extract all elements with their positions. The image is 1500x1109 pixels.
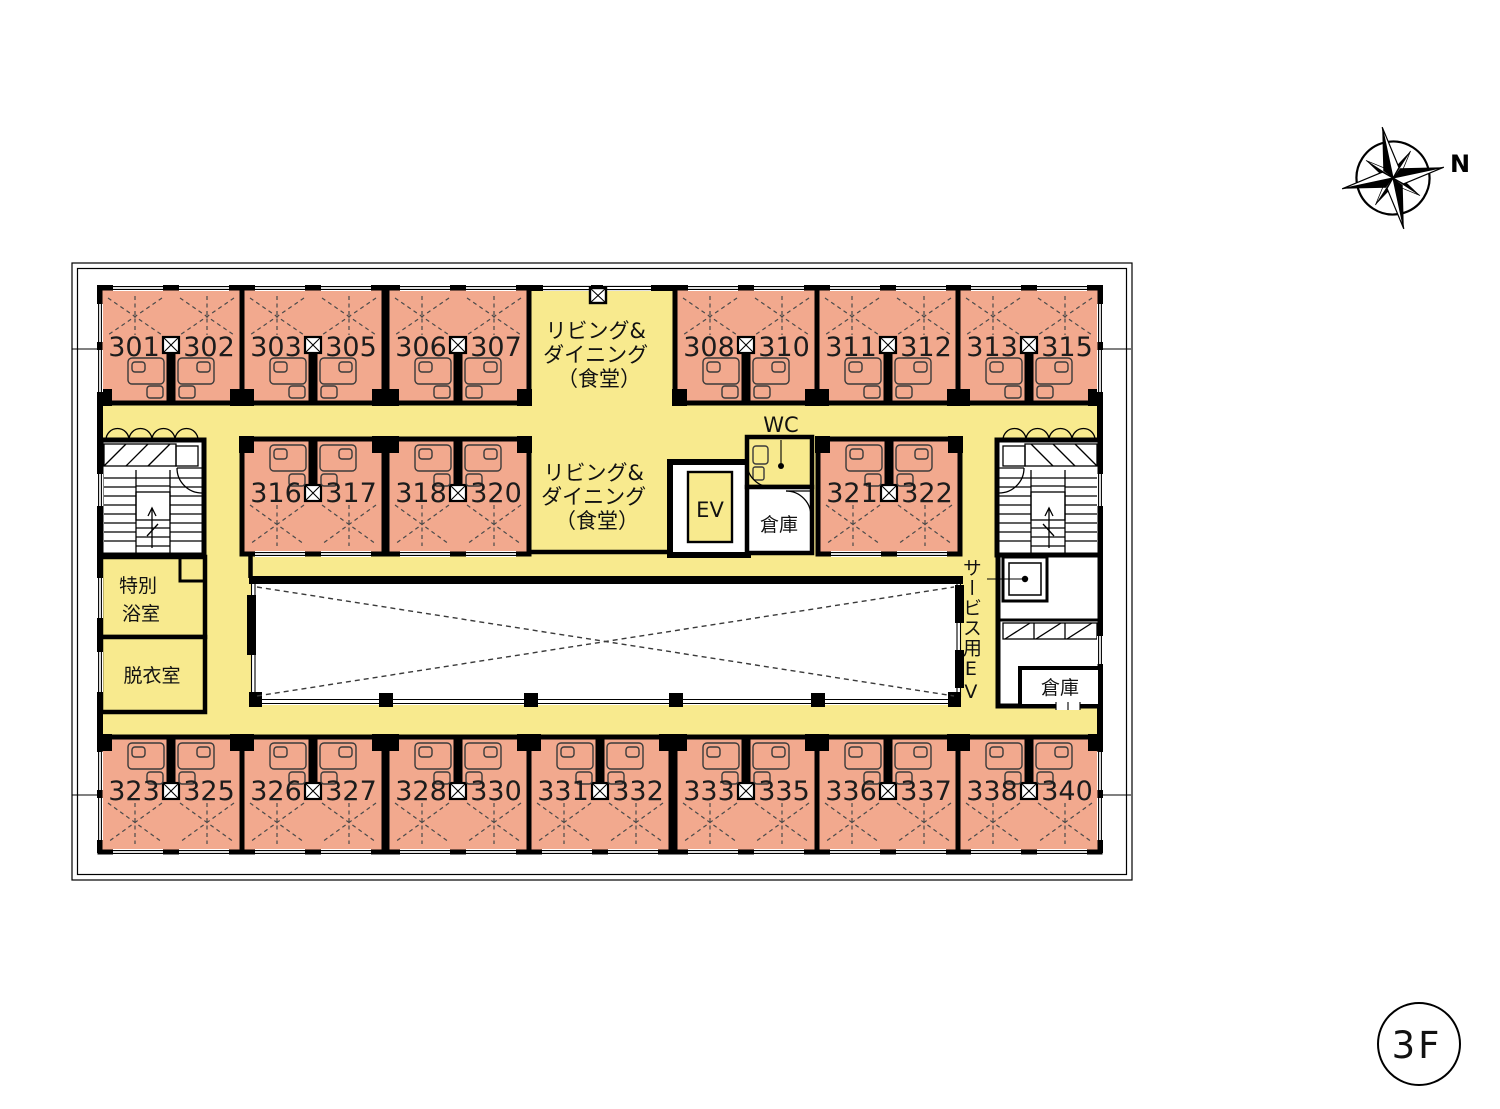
room-325: 325 (183, 776, 235, 807)
room-320: 320 (470, 478, 522, 509)
room-323: 323 (108, 776, 160, 807)
room-332: 332 (612, 776, 664, 807)
room-337: 337 (900, 776, 952, 807)
room-328: 328 (395, 776, 447, 807)
room-338: 338 (966, 776, 1018, 807)
room-311: 311 (825, 332, 877, 363)
room-336: 336 (825, 776, 877, 807)
room-301: 301 (108, 332, 160, 363)
room-317: 317 (325, 478, 377, 509)
washstand-icon (590, 288, 606, 303)
courtyard-void (247, 553, 964, 707)
right-stairwell (997, 429, 1100, 555)
room-335: 335 (758, 776, 810, 807)
room-306: 306 (395, 332, 447, 363)
room-303: 303 (250, 332, 302, 363)
dressing-room-label: 脱衣室 (123, 665, 180, 687)
room-305: 305 (325, 332, 377, 363)
floor-badge: 3F (1378, 1003, 1460, 1085)
room-302: 302 (183, 332, 235, 363)
room-312: 312 (900, 332, 952, 363)
room-310: 310 (758, 332, 810, 363)
floor-plan-drawing: 301 302 303 305 306 307 308 310 311 312 … (0, 0, 1500, 1109)
living-dining-middle-label: リビング& ダイニング （食堂） (541, 461, 653, 533)
wc-label: WC (763, 413, 798, 437)
room-322: 322 (901, 478, 953, 509)
room-331: 331 (537, 776, 589, 807)
floor-badge-label: 3F (1392, 1024, 1443, 1067)
room-327: 327 (325, 776, 377, 807)
room-313: 313 (966, 332, 1018, 363)
wc-room (747, 437, 812, 487)
service-elevator-label: サービス用EV (960, 558, 990, 718)
room-330: 330 (470, 776, 522, 807)
room-308: 308 (683, 332, 735, 363)
north-label: N (1450, 150, 1470, 178)
floor-plan-page: 301 302 303 305 306 307 308 310 311 312 … (0, 0, 1500, 1109)
room-333: 333 (683, 776, 735, 807)
room-318: 318 (395, 478, 447, 509)
storage-right-label: 倉庫 (1041, 677, 1079, 699)
room-340: 340 (1041, 776, 1093, 807)
room-321: 321 (826, 478, 878, 509)
room-316: 316 (250, 478, 302, 509)
left-stairwell (101, 429, 204, 555)
elevator-label: EV (696, 498, 724, 522)
room-326: 326 (250, 776, 302, 807)
room-307: 307 (470, 332, 522, 363)
storage-center-label: 倉庫 (760, 514, 798, 536)
living-dining-top-label: リビング& ダイニング （食堂） (543, 319, 655, 391)
special-bathroom (101, 557, 205, 637)
room-315: 315 (1041, 332, 1093, 363)
